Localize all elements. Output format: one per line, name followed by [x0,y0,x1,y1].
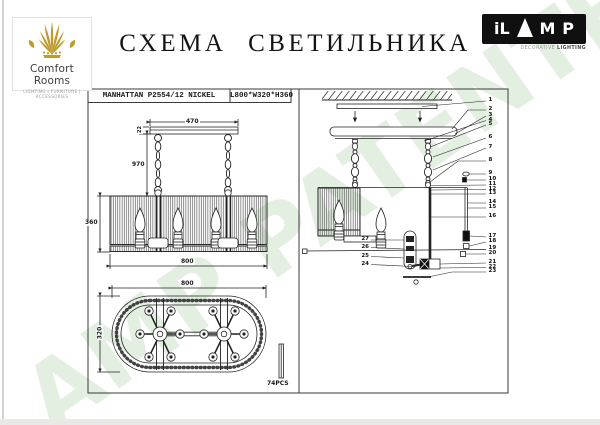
callout-number-23: 23 [489,269,497,275]
schematic-page: iLAMP PATENTED [0,0,600,425]
callout-number-27: 27 [353,237,369,243]
callout-labels: 1234567891011121314151617181920212223272… [0,0,600,425]
callout-number-16: 16 [489,214,497,220]
callout-number-20: 20 [489,251,497,257]
callout-number-5: 5 [489,122,493,128]
callout-number-6: 6 [489,135,493,141]
callout-number-18: 18 [489,239,497,245]
callout-number-15: 15 [489,205,497,211]
callout-number-7: 7 [489,145,493,151]
callout-number-26: 26 [353,245,369,251]
callout-number-1: 1 [489,98,493,104]
callout-number-8: 8 [489,158,493,164]
callout-number-24: 24 [353,262,369,268]
callout-number-25: 25 [353,254,369,260]
callout-number-13: 13 [489,191,497,197]
